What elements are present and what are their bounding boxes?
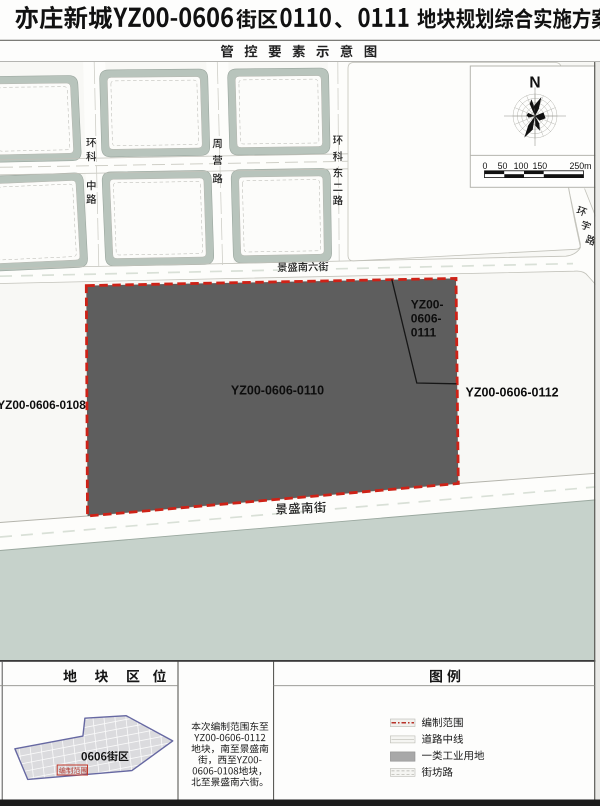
svg-text:0606-: 0606- bbox=[411, 311, 442, 325]
svg-text:250m: 250m bbox=[569, 161, 591, 171]
svg-text:50: 50 bbox=[498, 161, 508, 171]
svg-text:YZ00-0606-0112: YZ00-0606-0112 bbox=[466, 385, 559, 399]
svg-text:0111: 0111 bbox=[411, 325, 437, 339]
svg-text:150: 150 bbox=[532, 161, 547, 171]
svg-text:0: 0 bbox=[483, 161, 488, 171]
svg-text:YZ00-: YZ00- bbox=[411, 297, 444, 311]
svg-text:YZ00-0606-0110: YZ00-0606-0110 bbox=[231, 384, 324, 398]
svg-text:100: 100 bbox=[514, 161, 529, 171]
svg-text:YZ00-0606-0108: YZ00-0606-0108 bbox=[0, 398, 86, 412]
